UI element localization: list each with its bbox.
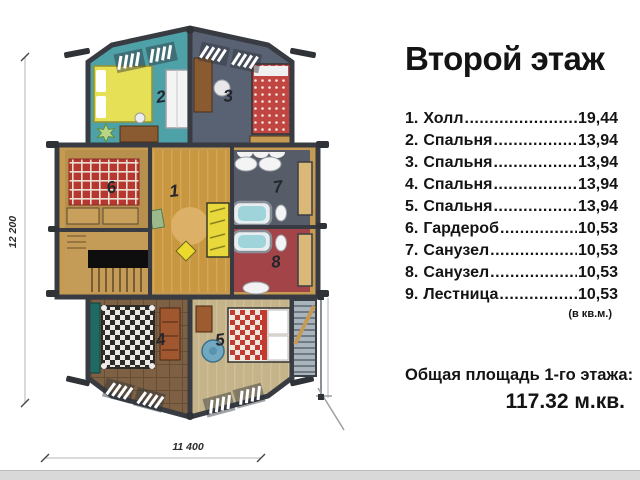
log-beam	[290, 48, 317, 59]
room-label: Спальня	[423, 174, 492, 196]
width-dimension: 11 400	[41, 441, 265, 462]
height-dimension: 12 200	[7, 53, 29, 407]
legend-row: 4.Спальня...............................…	[405, 174, 618, 196]
room-index: 2.	[405, 130, 418, 152]
cabinet	[196, 306, 212, 332]
legend-row: 8.Санузел...............................…	[405, 262, 618, 284]
sink	[243, 282, 269, 294]
room-index: 1.	[405, 108, 418, 130]
sink	[235, 157, 257, 171]
room-area: 10,53	[578, 218, 618, 240]
room-area: 10,53	[578, 262, 618, 284]
legend-row: 2.Спальня...............................…	[405, 130, 618, 152]
room-index: 5.	[405, 196, 418, 218]
width-dimension-label: 11 400	[172, 441, 203, 453]
room-area: 13,94	[578, 152, 618, 174]
room-index: 6.	[405, 218, 418, 240]
room-area: 10,53	[578, 284, 618, 306]
dot-leader: ........................................…	[490, 262, 577, 284]
window-door	[298, 162, 312, 215]
stair-void	[88, 250, 148, 268]
dot-leader: ........................................…	[465, 108, 577, 130]
room-label: Спальня	[423, 130, 492, 152]
wardrobe	[207, 203, 229, 257]
room-area: 10,53	[578, 240, 618, 262]
legend-row: 7.Санузел...............................…	[405, 240, 618, 262]
external-stairs	[293, 294, 344, 430]
room-area: 13,94	[578, 196, 618, 218]
height-dimension-label: 12 200	[7, 216, 19, 248]
dot-leader: ........................................…	[500, 218, 577, 240]
dot-leader: ........................................…	[493, 130, 576, 152]
toilet	[276, 235, 287, 251]
room-index: 8.	[405, 262, 418, 284]
room-label: Санузел	[423, 240, 489, 262]
dot-leader: ........................................…	[493, 196, 576, 218]
log-beam	[64, 48, 91, 59]
sink	[259, 157, 281, 171]
bench	[90, 303, 100, 373]
round-rug	[171, 207, 209, 245]
legend-row: 3.Спальня...............................…	[405, 152, 618, 174]
room-legend: 1.Холл..................................…	[405, 108, 618, 320]
legend-row: 5.Спальня...............................…	[405, 196, 618, 218]
room-index: 9.	[405, 284, 418, 306]
middle-section	[57, 145, 318, 297]
dot-leader: ........................................…	[499, 284, 577, 306]
room-label: Лестница	[423, 284, 498, 306]
dresser	[120, 126, 158, 142]
stool	[135, 113, 145, 123]
bottom-strip	[0, 470, 640, 480]
room-area: 13,94	[578, 130, 618, 152]
floorplan-page: 12 200 11 400	[0, 0, 640, 480]
window-door	[298, 234, 312, 286]
bed	[102, 306, 154, 368]
room-area: 13,94	[578, 174, 618, 196]
room-label: Холл	[423, 108, 463, 130]
room-index: 4.	[405, 174, 418, 196]
room-index: 7.	[405, 240, 418, 262]
desk	[194, 58, 212, 112]
room-index: 3.	[405, 152, 418, 174]
floor-plan-drawing: 12 200 11 400	[0, 0, 400, 480]
page-title: Второй этаж	[405, 40, 635, 78]
room-label: Спальня	[423, 152, 492, 174]
total-area-label: Общая площадь 1-го этажа:	[405, 366, 625, 385]
room-label: Гардероб	[423, 218, 499, 240]
bottom-section	[66, 297, 315, 420]
dot-leader: ........................................…	[490, 240, 577, 262]
top-section	[64, 26, 317, 145]
total-area-value: 117.32 м.кв.	[405, 390, 625, 414]
dot-leader: ........................................…	[493, 174, 576, 196]
room-area: 19,44	[578, 108, 618, 130]
dot-leader: ........................................…	[493, 152, 576, 174]
legend-row: 1.Холл..................................…	[405, 108, 618, 130]
toilet	[276, 205, 287, 221]
legend-row: 9.Лестница..............................…	[405, 284, 618, 306]
legend-row: 6.Гардероб..............................…	[405, 218, 618, 240]
room-label: Санузел	[423, 262, 489, 284]
room-label: Спальня	[423, 196, 492, 218]
units-note: (в кв.м.)	[405, 308, 618, 320]
room-number-1: 1	[168, 181, 179, 201]
total-area-block: Общая площадь 1-го этажа: 117.32 м.кв.	[405, 366, 625, 414]
